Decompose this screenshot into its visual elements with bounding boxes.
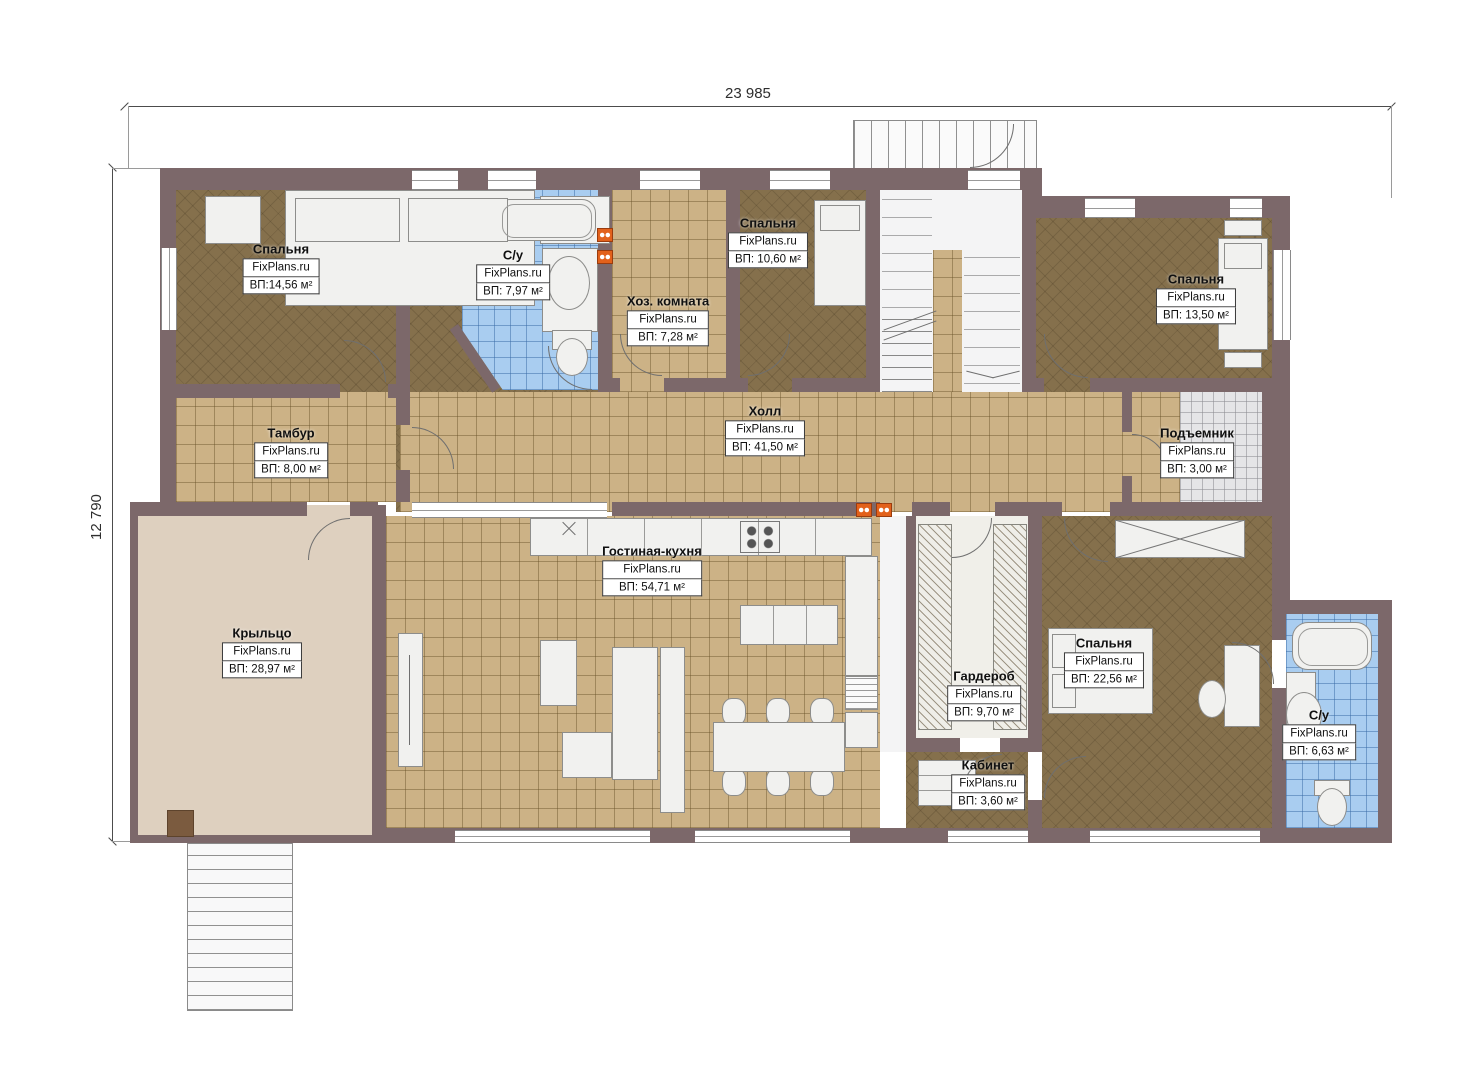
tv-console <box>398 633 423 767</box>
watermark: FixPlans.ru <box>222 642 302 661</box>
chair <box>722 768 746 796</box>
room-area: ВП: 6,63 м² <box>1282 743 1356 761</box>
room-area: ВП: 28,97 м² <box>222 661 302 679</box>
sink <box>548 256 590 310</box>
pillow <box>820 205 860 231</box>
watermark: FixPlans.ru <box>627 310 709 329</box>
wall-bedroom4-top <box>1042 502 1062 516</box>
label-living: Гостиная-кухня FixPlans.ru ВП: 54,71 м² <box>602 543 702 596</box>
room-area: ВП: 3,60 м² <box>951 793 1025 811</box>
watermark: FixPlans.ru <box>476 264 550 283</box>
dimension-line-left <box>112 168 113 842</box>
room-name: Спальня <box>1156 271 1236 286</box>
room-area: ВП: 13,50 м² <box>1156 307 1236 325</box>
room-name: С/у <box>476 247 550 262</box>
room-area: ВП: 3,00 м² <box>1160 461 1234 479</box>
window <box>1230 198 1262 218</box>
wall-bedroom3-bottom <box>1090 378 1272 392</box>
room-name: Гостиная-кухня <box>602 543 702 558</box>
radiator <box>876 503 892 517</box>
watermark: FixPlans.ru <box>254 442 328 461</box>
window <box>948 830 1028 843</box>
room-area: ВП:14,56 м² <box>243 277 320 295</box>
wall-tambour-bottom <box>138 502 307 516</box>
room-area: ВП: 41,50 м² <box>725 439 805 457</box>
stair-flight-lower-left <box>882 310 932 392</box>
radiator <box>856 503 872 517</box>
dining-table <box>713 722 845 772</box>
watermark: FixPlans.ru <box>951 774 1025 793</box>
label-porch: Крыльцо FixPlans.ru ВП: 28,97 м² <box>222 625 302 678</box>
window <box>640 170 700 190</box>
wall-left <box>160 168 176 512</box>
bathtub-inner <box>1298 628 1368 666</box>
wall-bedroom1-bottom <box>388 384 396 398</box>
hall-living-opening <box>412 502 607 518</box>
porch-column <box>167 810 194 837</box>
stair-column <box>933 250 962 392</box>
coffee-table <box>540 640 577 706</box>
label-bedroom1: Спальня FixPlans.ru ВП:14,56 м² <box>243 241 320 294</box>
wall-bedroom3-bottom <box>1036 378 1044 392</box>
wall-bath2-left <box>1272 614 1286 640</box>
wall-bedroom4-left <box>1028 516 1042 752</box>
room-utility-floor <box>612 188 726 392</box>
dimension-line-top <box>128 106 1392 107</box>
wall-lift-left <box>1122 476 1132 512</box>
sofa-chaise <box>562 732 612 778</box>
window <box>1090 830 1260 843</box>
label-hall: Холл FixPlans.ru ВП: 41,50 м² <box>725 403 805 456</box>
porch-wall-left <box>130 502 138 843</box>
chair <box>766 768 790 796</box>
wall-bedroom2-bottom <box>740 378 748 392</box>
chair <box>810 768 834 796</box>
pillow <box>408 198 508 242</box>
nightstand <box>205 196 261 244</box>
room-area: ВП: 9,70 м² <box>947 704 1021 722</box>
wall-utility-bottom <box>664 378 726 392</box>
radiator <box>597 228 613 242</box>
wall-bedroom2-right <box>866 188 880 392</box>
label-cabinet: Кабинет FixPlans.ru ВП: 3,60 м² <box>951 757 1025 810</box>
label-wardrobe: Гардероб FixPlans.ru ВП: 9,70 м² <box>947 668 1021 721</box>
wall-tambour-bottom <box>350 502 378 516</box>
stove-icon <box>740 521 780 553</box>
pillow <box>1224 243 1262 269</box>
label-bedroom2: Спальня FixPlans.ru ВП: 10,60 м² <box>728 215 808 268</box>
stair-flight-right <box>964 250 1020 384</box>
label-utility: Хоз. комната FixPlans.ru ВП: 7,28 м² <box>627 293 709 346</box>
room-name: Гардероб <box>947 668 1021 683</box>
window <box>412 170 458 190</box>
wardrobe-closet-x-icon <box>1115 520 1245 558</box>
floor-plan: 23 985 12 790 <box>0 0 1474 1080</box>
kitchen-island <box>740 605 838 645</box>
tv-icon <box>409 655 410 745</box>
room-name: Спальня <box>1064 635 1144 650</box>
label-tambour: Тамбур FixPlans.ru ВП: 8,00 м² <box>254 425 328 478</box>
label-bedroom3: Спальня FixPlans.ru ВП: 13,50 м² <box>1156 271 1236 324</box>
wall-wardrobe-left <box>906 516 916 738</box>
wall-bedroom4-top <box>1110 502 1272 516</box>
nightstand <box>1224 352 1262 368</box>
wall-bedroom4-left <box>1028 800 1042 828</box>
dimension-height-label: 12 790 <box>88 494 105 540</box>
wall-hall-bottom <box>612 502 880 516</box>
wall-lift-left <box>1122 392 1132 432</box>
window <box>695 830 850 843</box>
label-bath2: С/у FixPlans.ru ВП: 6,63 м² <box>1282 707 1356 760</box>
room-area: ВП: 7,97 м² <box>476 283 550 301</box>
room-name: Спальня <box>243 241 320 256</box>
stair-flight-upper-left <box>882 196 932 308</box>
extension-line <box>128 106 129 168</box>
window <box>1085 198 1135 218</box>
radiator <box>597 250 613 264</box>
nightstand <box>1224 220 1262 236</box>
watermark: FixPlans.ru <box>243 258 320 277</box>
terrace-door-opening <box>968 170 1020 190</box>
wall-right-far <box>1378 600 1392 843</box>
bathtub-inner <box>502 204 592 238</box>
watermark: FixPlans.ru <box>725 420 805 439</box>
kitchen-counter-right <box>845 556 878 676</box>
fridge <box>845 712 878 748</box>
label-lift: Подъемник FixPlans.ru ВП: 3,00 м² <box>1160 425 1234 478</box>
room-name: Спальня <box>728 215 808 230</box>
room-name: Крыльцо <box>222 625 302 640</box>
watermark: FixPlans.ru <box>1156 288 1236 307</box>
watermark: FixPlans.ru <box>1064 652 1144 671</box>
sofa <box>612 647 658 780</box>
room-name: Подъемник <box>1160 425 1234 440</box>
room-area: ВП: 7,28 м² <box>627 329 709 347</box>
room-area: ВП: 10,60 м² <box>728 251 808 269</box>
wall-bedroom1-bottom <box>176 384 340 398</box>
wall-cabinet-top <box>906 738 960 752</box>
wall-lift-right <box>1262 392 1272 512</box>
room-area: ВП: 22,56 м² <box>1064 671 1144 689</box>
room-name: С/у <box>1282 707 1356 722</box>
watermark: FixPlans.ru <box>1160 442 1234 461</box>
extension-line <box>112 841 130 842</box>
room-area: ВП: 54,71 м² <box>602 579 702 597</box>
wall-cabinet-top <box>1000 738 1028 752</box>
watermark: FixPlans.ru <box>1282 724 1356 743</box>
console-divider <box>660 647 685 813</box>
wall-top-a <box>160 168 1042 190</box>
window <box>455 830 650 843</box>
room-area: ВП: 8,00 м² <box>254 461 328 479</box>
watermark: FixPlans.ru <box>947 685 1021 704</box>
window <box>488 170 536 190</box>
wall-wardrobe-top <box>995 502 1042 516</box>
window <box>161 248 177 330</box>
dishwasher <box>845 676 878 710</box>
window <box>770 170 830 190</box>
wall-bedroom2-bottom <box>792 378 866 392</box>
extension-line <box>112 168 160 169</box>
pillow <box>295 198 400 242</box>
wall-stair-right <box>1022 188 1036 392</box>
toilet-bowl <box>1317 788 1347 826</box>
watermark: FixPlans.ru <box>728 232 808 251</box>
dimension-width-label: 23 985 <box>725 85 771 102</box>
label-bedroom4: Спальня FixPlans.ru ВП: 22,56 м² <box>1064 635 1144 688</box>
porch-stairs <box>187 843 293 1011</box>
wall-utility-bottom <box>612 378 620 392</box>
room-name: Кабинет <box>951 757 1025 772</box>
wall-porch-right <box>372 505 386 828</box>
wall-wardrobe-top <box>912 502 950 516</box>
room-name: Тамбур <box>254 425 328 440</box>
label-bath1: С/у FixPlans.ru ВП: 7,97 м² <box>476 247 550 300</box>
desk-chair <box>1198 680 1226 718</box>
room-name: Холл <box>725 403 805 418</box>
window <box>1273 250 1291 340</box>
wall-notch-top <box>1272 600 1392 614</box>
extension-line <box>1391 106 1392 198</box>
wall-v1 <box>396 470 410 502</box>
toilet-bowl <box>556 338 588 376</box>
room-name: Хоз. комната <box>627 293 709 308</box>
watermark: FixPlans.ru <box>602 560 702 579</box>
